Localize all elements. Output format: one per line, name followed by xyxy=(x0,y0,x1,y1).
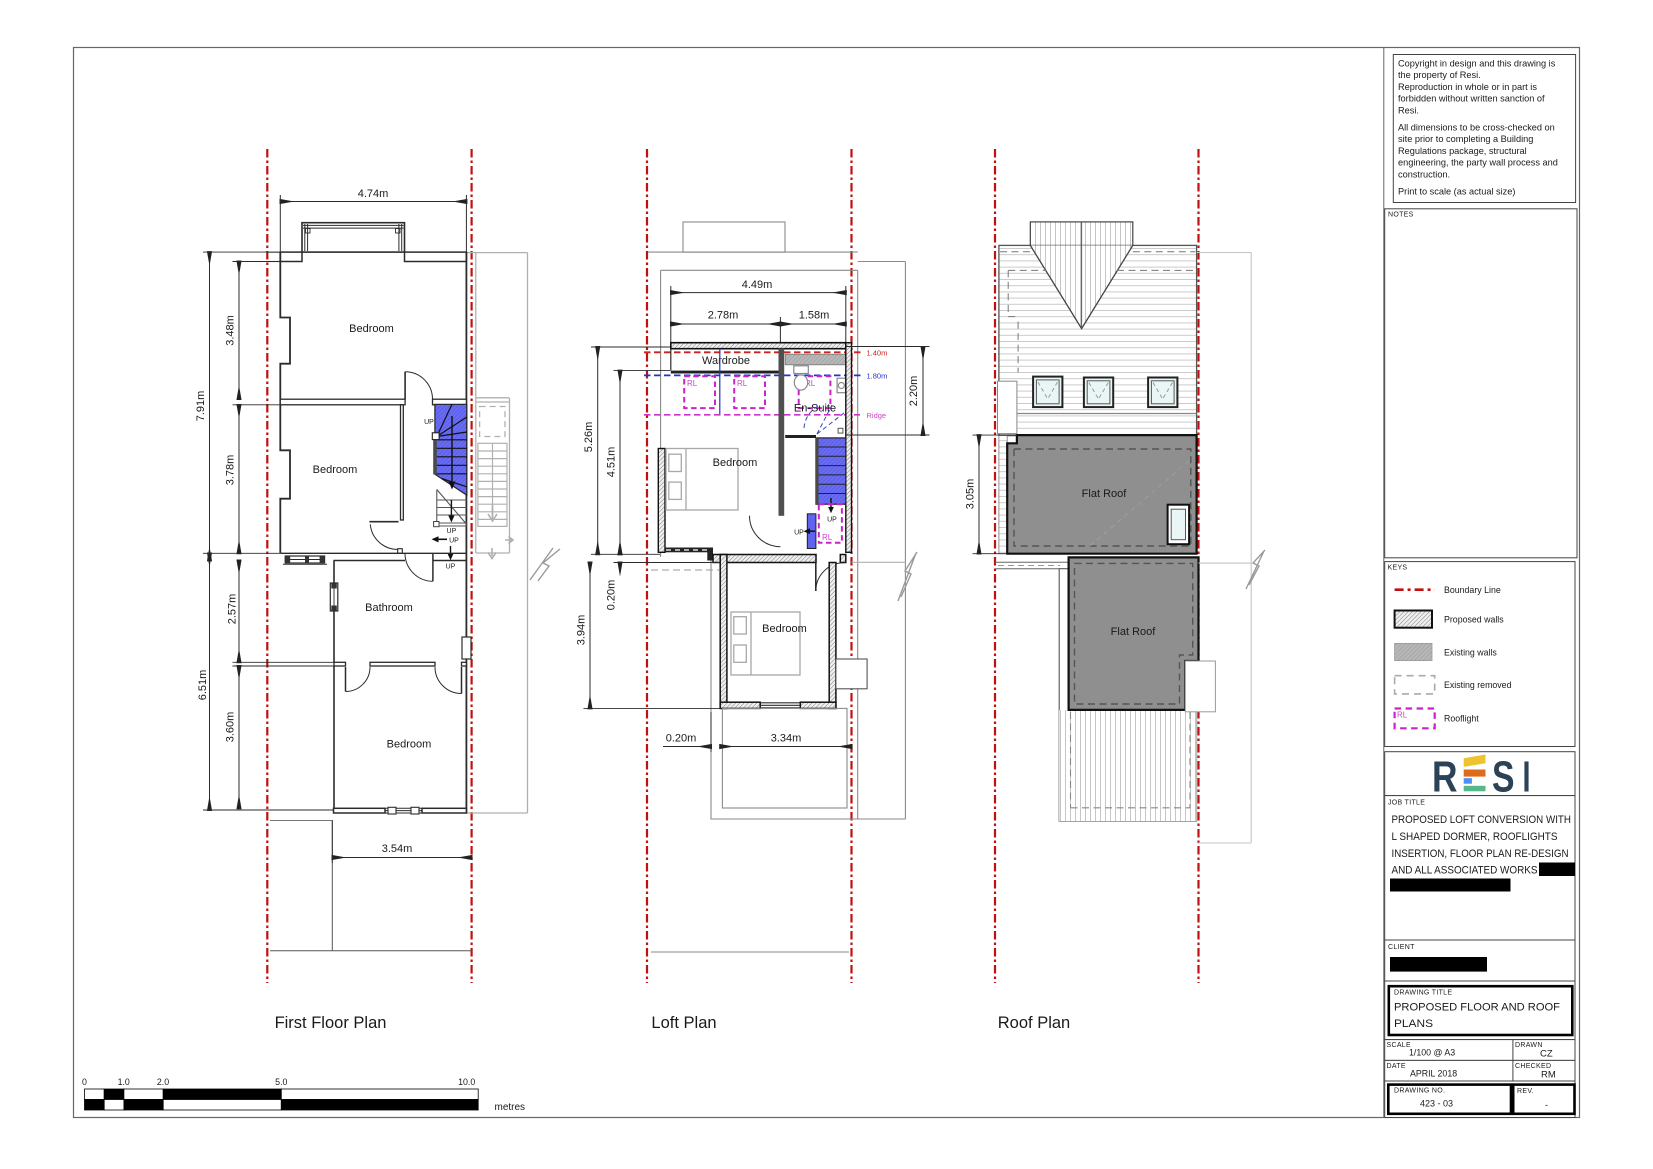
svg-text:JOB TITLE: JOB TITLE xyxy=(1388,800,1425,807)
svg-text:Ridge: Ridge xyxy=(867,411,887,420)
svg-text:DATE: DATE xyxy=(1387,1063,1406,1070)
svg-text:0.20m: 0.20m xyxy=(606,580,618,611)
svg-text:Wardrobe: Wardrobe xyxy=(702,355,750,367)
svg-text:3.78m: 3.78m xyxy=(225,455,237,486)
svg-text:Regulations package, structura: Regulations package, structural xyxy=(1398,146,1527,156)
svg-text:1.80m: 1.80m xyxy=(867,372,888,381)
svg-text:I: I xyxy=(1523,753,1531,802)
svg-text:Bedroom: Bedroom xyxy=(387,739,432,751)
svg-text:PROPOSED LOFT CONVERSION WITH: PROPOSED LOFT CONVERSION WITH xyxy=(1392,814,1572,826)
svg-text:SCALE: SCALE xyxy=(1387,1042,1411,1049)
svg-text:All dimensions to be cross-che: All dimensions to be cross-checked on xyxy=(1398,123,1555,133)
svg-text:INSERTION, FLOOR PLAN RE-DESIG: INSERTION, FLOOR PLAN RE-DESIGN xyxy=(1392,848,1569,860)
svg-text:Bedroom: Bedroom xyxy=(762,623,807,635)
svg-text:1.0: 1.0 xyxy=(118,1077,130,1087)
svg-text:UP: UP xyxy=(827,517,837,524)
svg-text:3.48m: 3.48m xyxy=(225,315,237,346)
svg-text:the property of Resi.: the property of Resi. xyxy=(1398,70,1481,80)
svg-text:Bedroom: Bedroom xyxy=(713,457,758,469)
svg-text:RM: RM xyxy=(1541,1070,1556,1081)
svg-text:UP: UP xyxy=(447,528,457,535)
svg-text:2.78m: 2.78m xyxy=(708,310,739,322)
svg-text:First Floor Plan: First Floor Plan xyxy=(275,1014,387,1032)
svg-text:Proposed walls: Proposed walls xyxy=(1444,615,1504,625)
svg-text:DRAWN: DRAWN xyxy=(1515,1042,1543,1049)
svg-text:UP: UP xyxy=(424,419,434,426)
svg-text:engineering, the party wall pr: engineering, the party wall process and xyxy=(1398,158,1558,168)
svg-text:4.49m: 4.49m xyxy=(742,279,773,291)
svg-text:CLIENT: CLIENT xyxy=(1388,944,1415,951)
svg-text:Boundary Line: Boundary Line xyxy=(1444,585,1501,595)
svg-text:metres: metres xyxy=(495,1102,526,1113)
svg-text:NOTES: NOTES xyxy=(1388,212,1414,219)
svg-text:5.0: 5.0 xyxy=(275,1077,287,1087)
svg-text:3.05m: 3.05m xyxy=(965,479,977,510)
svg-text:Print to scale (as actual size: Print to scale (as actual size) xyxy=(1398,187,1515,197)
svg-text:3.54m: 3.54m xyxy=(382,843,413,855)
svg-text:Loft Plan: Loft Plan xyxy=(651,1014,716,1032)
svg-text:RL: RL xyxy=(737,379,748,388)
svg-text:UP: UP xyxy=(449,538,459,545)
svg-text:S: S xyxy=(1492,753,1515,802)
svg-text:CZ: CZ xyxy=(1540,1049,1553,1060)
svg-text:DRAWING TITLE: DRAWING TITLE xyxy=(1394,990,1452,997)
svg-text:L SHAPED DORMER, ROOFLIGHTS: L SHAPED DORMER, ROOFLIGHTS xyxy=(1392,831,1558,843)
svg-text:10.0: 10.0 xyxy=(458,1077,475,1087)
svg-text:Flat Roof: Flat Roof xyxy=(1111,626,1157,638)
svg-text:3.94m: 3.94m xyxy=(576,615,588,646)
svg-text:site prior to completing a Bui: site prior to completing a Building xyxy=(1398,134,1533,144)
svg-text:RL: RL xyxy=(822,533,833,542)
svg-text:6.51m: 6.51m xyxy=(197,670,209,701)
svg-text:4.74m: 4.74m xyxy=(358,188,389,200)
svg-text:Copyright in design and this d: Copyright in design and this drawing is xyxy=(1398,59,1556,69)
svg-text:4.51m: 4.51m xyxy=(606,447,618,478)
svg-text:Bathroom: Bathroom xyxy=(365,602,413,614)
svg-text:2.57m: 2.57m xyxy=(227,594,239,625)
svg-text:RL: RL xyxy=(1397,711,1408,720)
svg-text:AND ALL ASSOCIATED WORKS: AND ALL ASSOCIATED WORKS xyxy=(1392,865,1538,877)
svg-text:Roof Plan: Roof Plan xyxy=(998,1014,1070,1032)
svg-text:3.34m: 3.34m xyxy=(771,733,802,745)
svg-text:Existing walls: Existing walls xyxy=(1444,647,1497,657)
svg-text:UP: UP xyxy=(794,530,804,537)
svg-text:0.20m: 0.20m xyxy=(666,733,697,745)
svg-text:APRIL 2018: APRIL 2018 xyxy=(1410,1069,1457,1079)
svg-text:Resi.: Resi. xyxy=(1398,105,1419,115)
svg-text:PLANS: PLANS xyxy=(1394,1018,1433,1030)
svg-text:RL: RL xyxy=(687,379,698,388)
svg-text:7.91m: 7.91m xyxy=(195,391,207,422)
svg-text:423 - 03: 423 - 03 xyxy=(1420,1099,1453,1109)
svg-text:Rooflight: Rooflight xyxy=(1444,714,1479,724)
svg-text:Bedroom: Bedroom xyxy=(349,323,394,335)
svg-text:construction.: construction. xyxy=(1398,169,1450,179)
svg-text:PROPOSED FLOOR AND ROOF: PROPOSED FLOOR AND ROOF xyxy=(1394,1002,1560,1014)
svg-text:UP: UP xyxy=(446,564,456,571)
svg-text:0: 0 xyxy=(82,1077,87,1087)
svg-text:5.26m: 5.26m xyxy=(583,422,595,453)
svg-text:2.20m: 2.20m xyxy=(908,376,920,407)
svg-text:Bedroom: Bedroom xyxy=(313,464,358,476)
svg-text:REV.: REV. xyxy=(1517,1088,1534,1095)
svg-text:-: - xyxy=(1545,1100,1548,1110)
svg-text:2.0: 2.0 xyxy=(157,1077,169,1087)
svg-text:1.58m: 1.58m xyxy=(799,310,830,322)
svg-text:Existing removed: Existing removed xyxy=(1444,680,1512,690)
svg-text:Reproduction in whole or in pa: Reproduction in whole or in part is xyxy=(1398,82,1537,92)
svg-text:1.40m: 1.40m xyxy=(867,349,888,358)
svg-text:DRAWING NO.: DRAWING NO. xyxy=(1394,1088,1445,1095)
svg-text:R: R xyxy=(1432,753,1458,802)
svg-text:Flat Roof: Flat Roof xyxy=(1082,488,1128,500)
svg-text:KEYS: KEYS xyxy=(1388,565,1408,572)
svg-text:1/100 @ A3: 1/100 @ A3 xyxy=(1409,1048,1455,1058)
svg-text:3.60m: 3.60m xyxy=(225,712,237,743)
svg-text:forbidden without written sanc: forbidden without written sanction of xyxy=(1398,94,1545,104)
